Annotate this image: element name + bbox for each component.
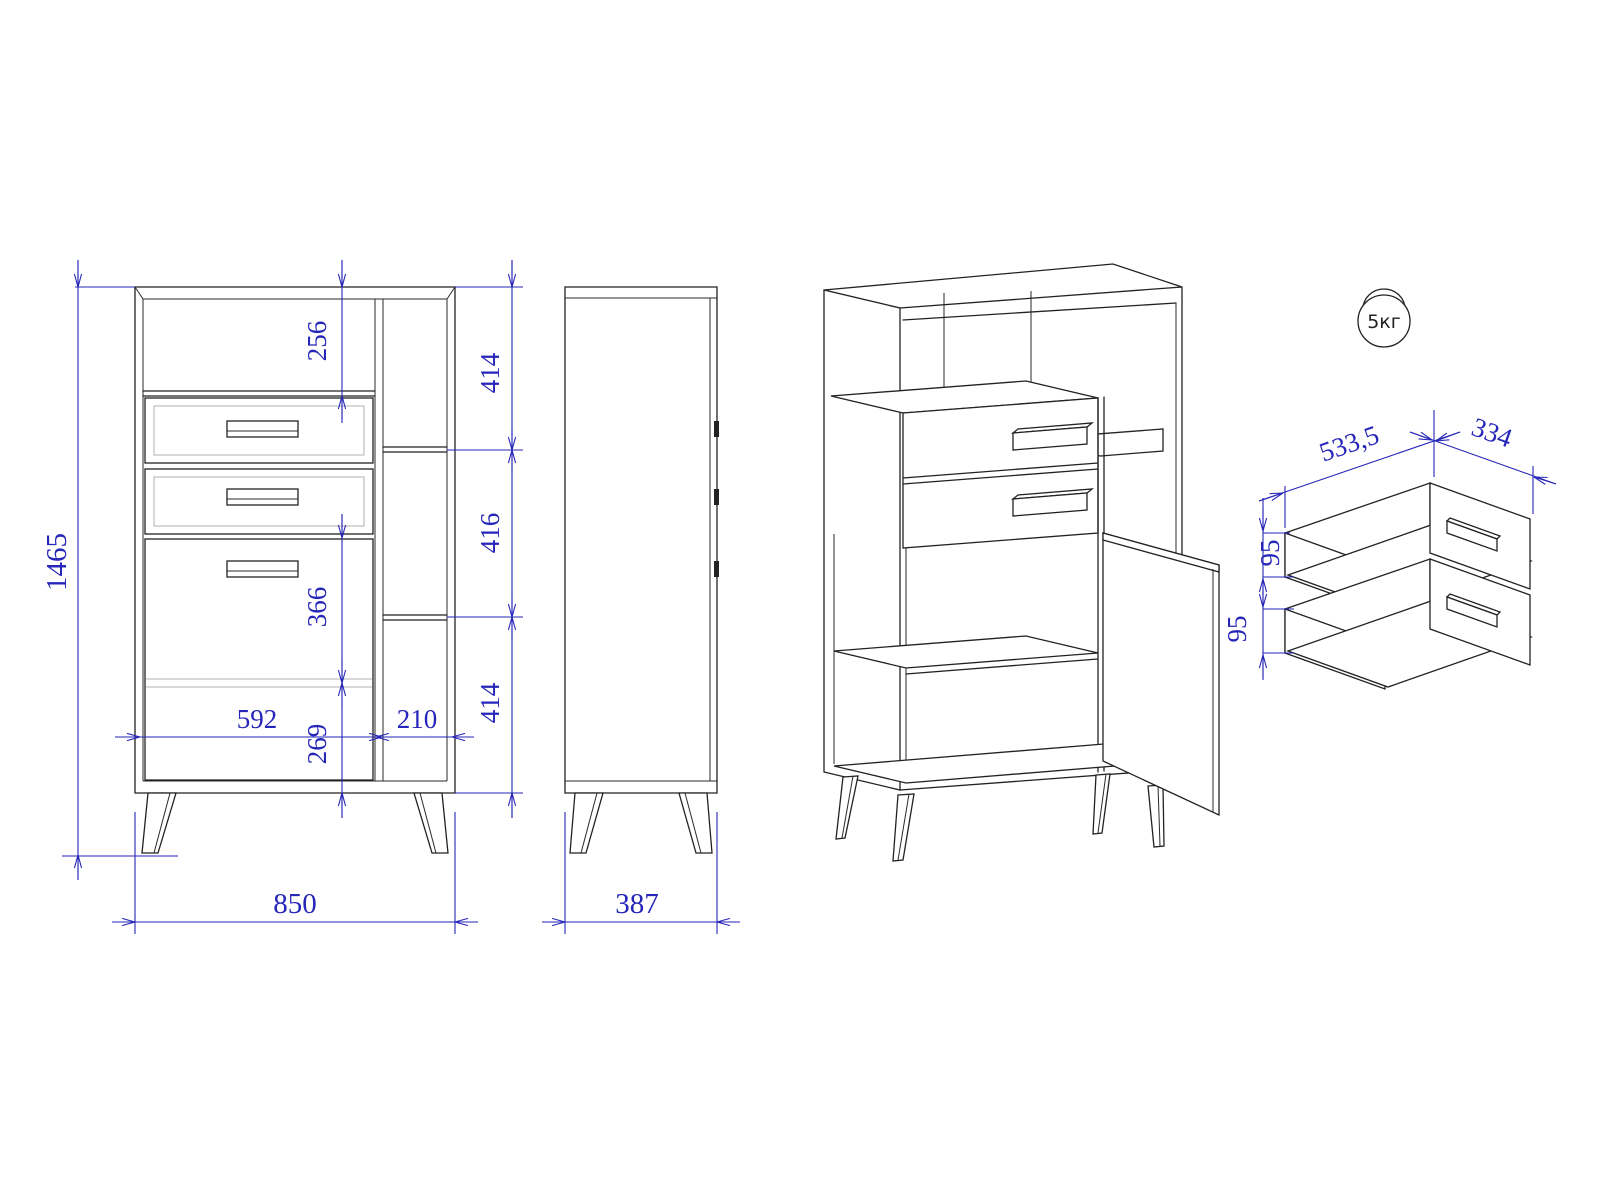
dim-right-section-width: 210 bbox=[397, 704, 438, 734]
side-cabinet bbox=[565, 287, 719, 853]
load-limit-label: 5кг bbox=[1367, 311, 1401, 333]
front-door bbox=[145, 539, 373, 780]
dim-drawer2-side-height: 95 bbox=[1222, 616, 1252, 643]
front-cabinet bbox=[135, 287, 455, 853]
kettlebell-icon: 5кг bbox=[1358, 289, 1410, 347]
dim-drawer-depth: 334 bbox=[1468, 412, 1517, 454]
dim-door-lower: 269 bbox=[302, 724, 332, 765]
drawer-1-handle bbox=[227, 421, 298, 437]
front-shelf-lines bbox=[383, 447, 447, 620]
side-legs bbox=[570, 793, 712, 853]
front-legs bbox=[142, 793, 448, 853]
side-view: 387 bbox=[542, 287, 740, 934]
dim-shelf-top: 414 bbox=[475, 352, 505, 393]
dim-drawer-width: 533,5 bbox=[1315, 419, 1382, 467]
hidden-shelf-line bbox=[146, 679, 372, 687]
dim-total-height: 1465 bbox=[41, 533, 73, 591]
furniture-drawing: 1465 256 366 269 414 416 414 592 210 850 bbox=[0, 0, 1600, 1200]
iso-left-panel bbox=[824, 290, 900, 790]
dim-door-upper: 366 bbox=[302, 587, 332, 628]
iso-view bbox=[824, 264, 1219, 861]
side-handle-mark-3 bbox=[714, 561, 719, 577]
front-drawer-shelf-line bbox=[143, 391, 375, 396]
front-dimensions: 1465 256 366 269 414 416 414 592 210 850 bbox=[41, 260, 523, 934]
technical-drawing-page: 1465 256 366 269 414 416 414 592 210 850 bbox=[0, 0, 1600, 1200]
dim-shelf-bottom: 414 bbox=[475, 682, 505, 723]
drawer-2-handle bbox=[227, 489, 298, 505]
dim-depth: 387 bbox=[615, 888, 659, 920]
iso-top-panel bbox=[824, 264, 1182, 308]
dim-top-offset: 256 bbox=[302, 321, 332, 362]
iso-open-door bbox=[1103, 533, 1219, 815]
dim-total-width: 850 bbox=[273, 888, 317, 920]
front-view: 1465 256 366 269 414 416 414 592 210 850 bbox=[41, 260, 523, 934]
side-handle-mark-1 bbox=[714, 421, 719, 437]
door-handle bbox=[227, 561, 298, 577]
front-drawer-2 bbox=[145, 469, 373, 534]
dim-drawer1-side-height: 95 bbox=[1255, 540, 1285, 567]
front-partition bbox=[375, 299, 383, 781]
side-handle-mark-2 bbox=[714, 489, 719, 505]
dim-shelf-middle: 416 bbox=[475, 513, 505, 554]
drawer-detail: 533,5 334 95 95 bbox=[1222, 410, 1556, 689]
front-drawer-1 bbox=[145, 398, 373, 463]
dim-left-section-width: 592 bbox=[237, 704, 278, 734]
